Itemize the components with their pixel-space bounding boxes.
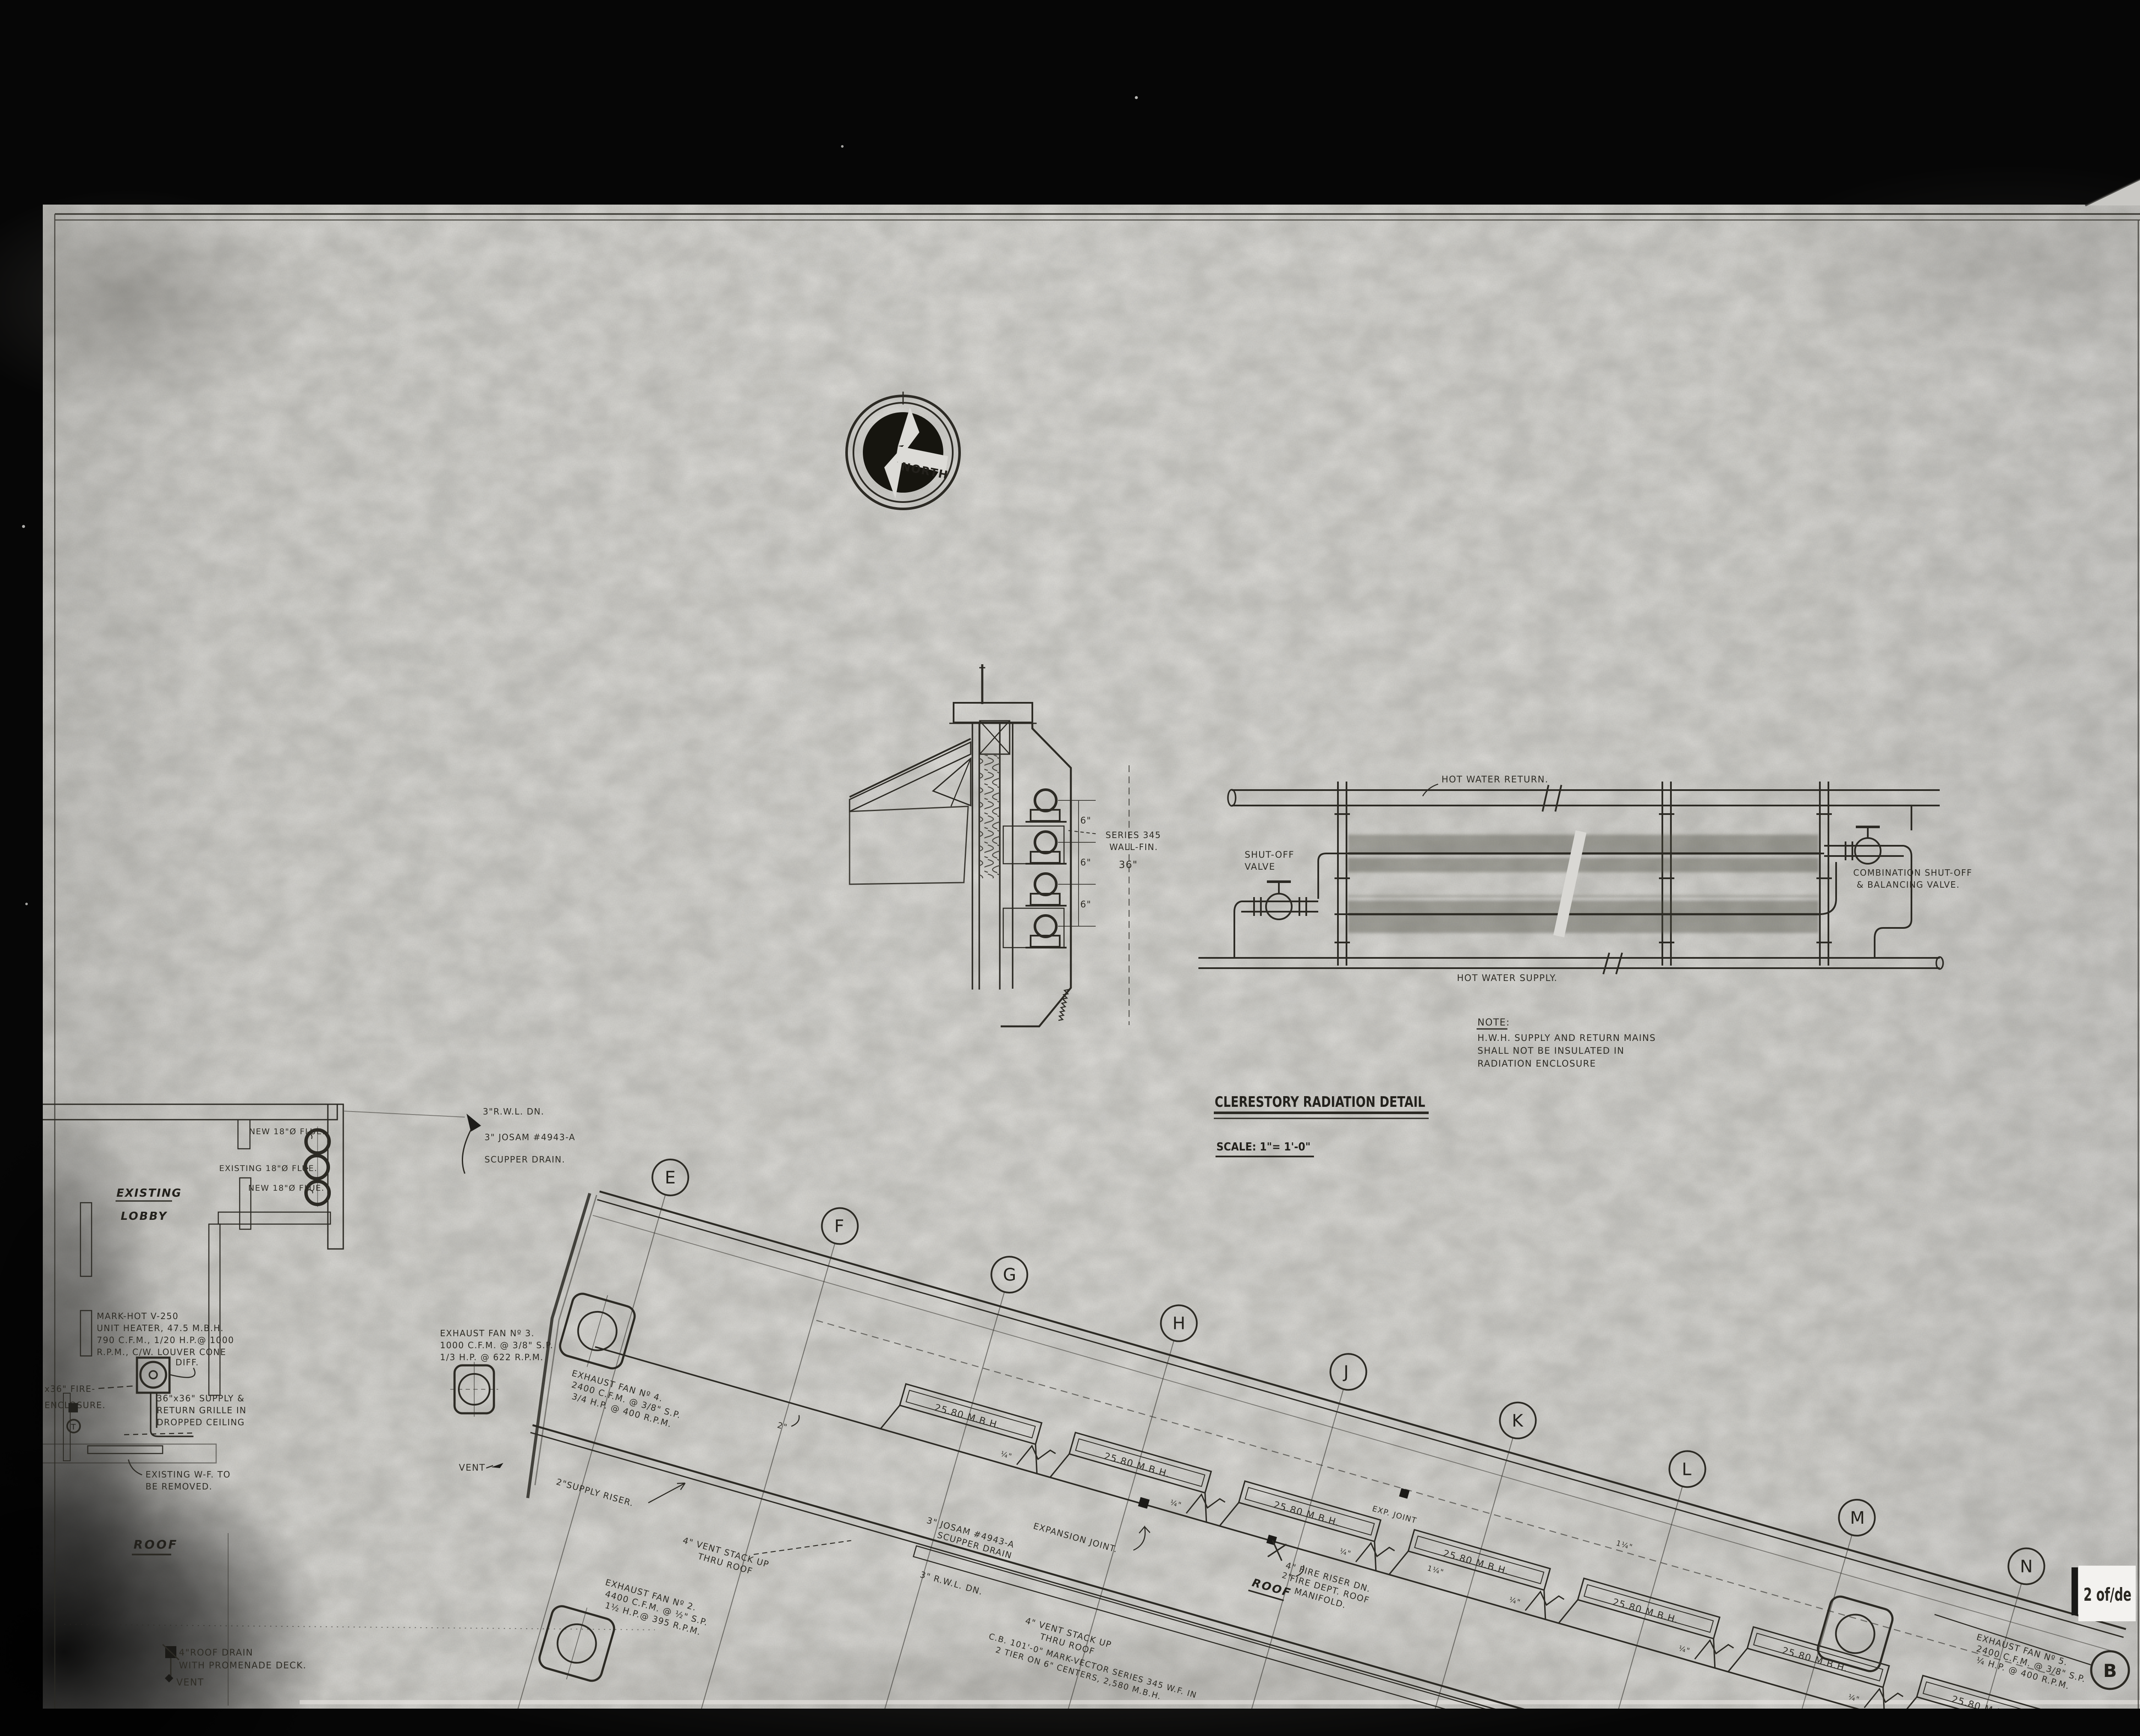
series-wall-fin-label: WALL-FIN. <box>1109 842 1158 852</box>
vent-label: VENT <box>176 1677 204 1688</box>
grid-bubble: G <box>1003 1265 1016 1285</box>
grille-note: DROPPED CEILING <box>157 1417 245 1427</box>
grid-bubble: L <box>1682 1460 1691 1479</box>
detail-scale: SCALE: 1"= 1'-0" <box>1216 1141 1311 1153</box>
roof-label: ROOF <box>134 1537 178 1552</box>
heater-line: R.P.M., C/W. LOUVER CONE <box>97 1347 226 1357</box>
shut-off-valve-label: SHUT-OFF <box>1245 850 1294 860</box>
combination-valve-label: & BALANCING VALVE. <box>1857 880 1960 890</box>
microfilm-frame: NORTH <box>0 0 2140 1736</box>
dim-6in: 6" <box>1080 899 1091 910</box>
josam-label: 3" JOSAM #4943-A <box>484 1132 575 1142</box>
fan3-label: EXHAUST FAN Nº 3. <box>440 1328 535 1338</box>
existing-lobby-label: EXISTING <box>116 1187 182 1200</box>
grid-bubble: H <box>1172 1314 1185 1334</box>
grid-bubble: N <box>2020 1557 2033 1576</box>
wf-removed-note: EXISTING W-F. TO <box>146 1469 231 1480</box>
dim-36in: 36" <box>1119 859 1138 871</box>
josam-label: SCUPPER DRAIN. <box>484 1154 565 1165</box>
heater-line: 790 C.F.M., 1/20 H.P.@ 1000 <box>97 1335 234 1345</box>
dim-6in: 6" <box>1080 815 1091 826</box>
detail-title: CLERESTORY RADIATION DETAIL <box>1215 1094 1425 1111</box>
switch-symbol <box>68 1403 78 1412</box>
flue-label-new-1: NEW 18"Ø FLUE. <box>249 1127 325 1136</box>
flue-label-new-2: NEW 18"Ø FLUE. <box>248 1183 324 1193</box>
roof-drain-note: WITH PROMENADE DECK. <box>179 1660 306 1671</box>
wf-removed-note: BE REMOVED. <box>146 1481 212 1492</box>
fan3-label: 1/3 H.P. @ 622 R.P.M. <box>440 1352 544 1362</box>
grid-bubble: F <box>834 1217 844 1237</box>
fire-enclosure-label: x36" FIRE- <box>45 1384 95 1394</box>
dim-6in: 6" <box>1080 857 1091 868</box>
frame-counter-sticker: 2 of/de <box>2072 1566 2136 1621</box>
thermostat-symbol: T <box>71 1423 76 1432</box>
frame-counter-label: 2 of/de <box>2084 1584 2131 1605</box>
hot-water-supply-label: HOT WATER SUPPLY. <box>1457 973 1557 983</box>
grid-bubble: E <box>665 1168 675 1188</box>
combination-valve-label: COMBINATION SHUT-OFF <box>1853 868 1972 878</box>
heater-line: UNIT HEATER, 47.5 M.B.H. <box>97 1323 224 1333</box>
existing-lobby-label: LOBBY <box>121 1210 168 1223</box>
grid-bubble: J <box>1342 1362 1349 1382</box>
hot-water-return-label: HOT WATER RETURN. <box>1442 774 1549 785</box>
grid-bubble: K <box>1512 1411 1524 1431</box>
note-line: SHALL NOT BE INSULATED IN <box>1477 1046 1625 1056</box>
roof-drain-note: 4"ROOF DRAIN <box>179 1647 253 1658</box>
vent-callout: VENT <box>459 1463 485 1473</box>
note-heading: NOTE: <box>1477 1017 1510 1028</box>
flue-label-existing: EXISTING 18"Ø FLUE. <box>219 1164 318 1173</box>
series-wall-fin-label: SERIES 345 <box>1106 830 1161 840</box>
note-line: RADIATION ENCLOSURE <box>1477 1058 1596 1069</box>
grid-bubble: B <box>2103 1660 2117 1681</box>
note-line: H.W.H. SUPPLY AND RETURN MAINS <box>1477 1033 1656 1043</box>
grille-note: 36"x36" SUPPLY & <box>157 1393 245 1403</box>
shut-off-valve-label: VALVE <box>1245 862 1275 872</box>
heater-line: MARK-HOT V-250 <box>97 1311 178 1321</box>
heater-line: DIFF. <box>175 1357 199 1367</box>
fan3-label: 1000 C.F.M. @ 3/8" S.P. <box>440 1340 553 1350</box>
rwl-label: 3"R.W.L. DN. <box>483 1106 544 1117</box>
grid-bubble: M <box>1850 1508 1865 1528</box>
grille-note: RETURN GRILLE IN <box>157 1405 247 1415</box>
